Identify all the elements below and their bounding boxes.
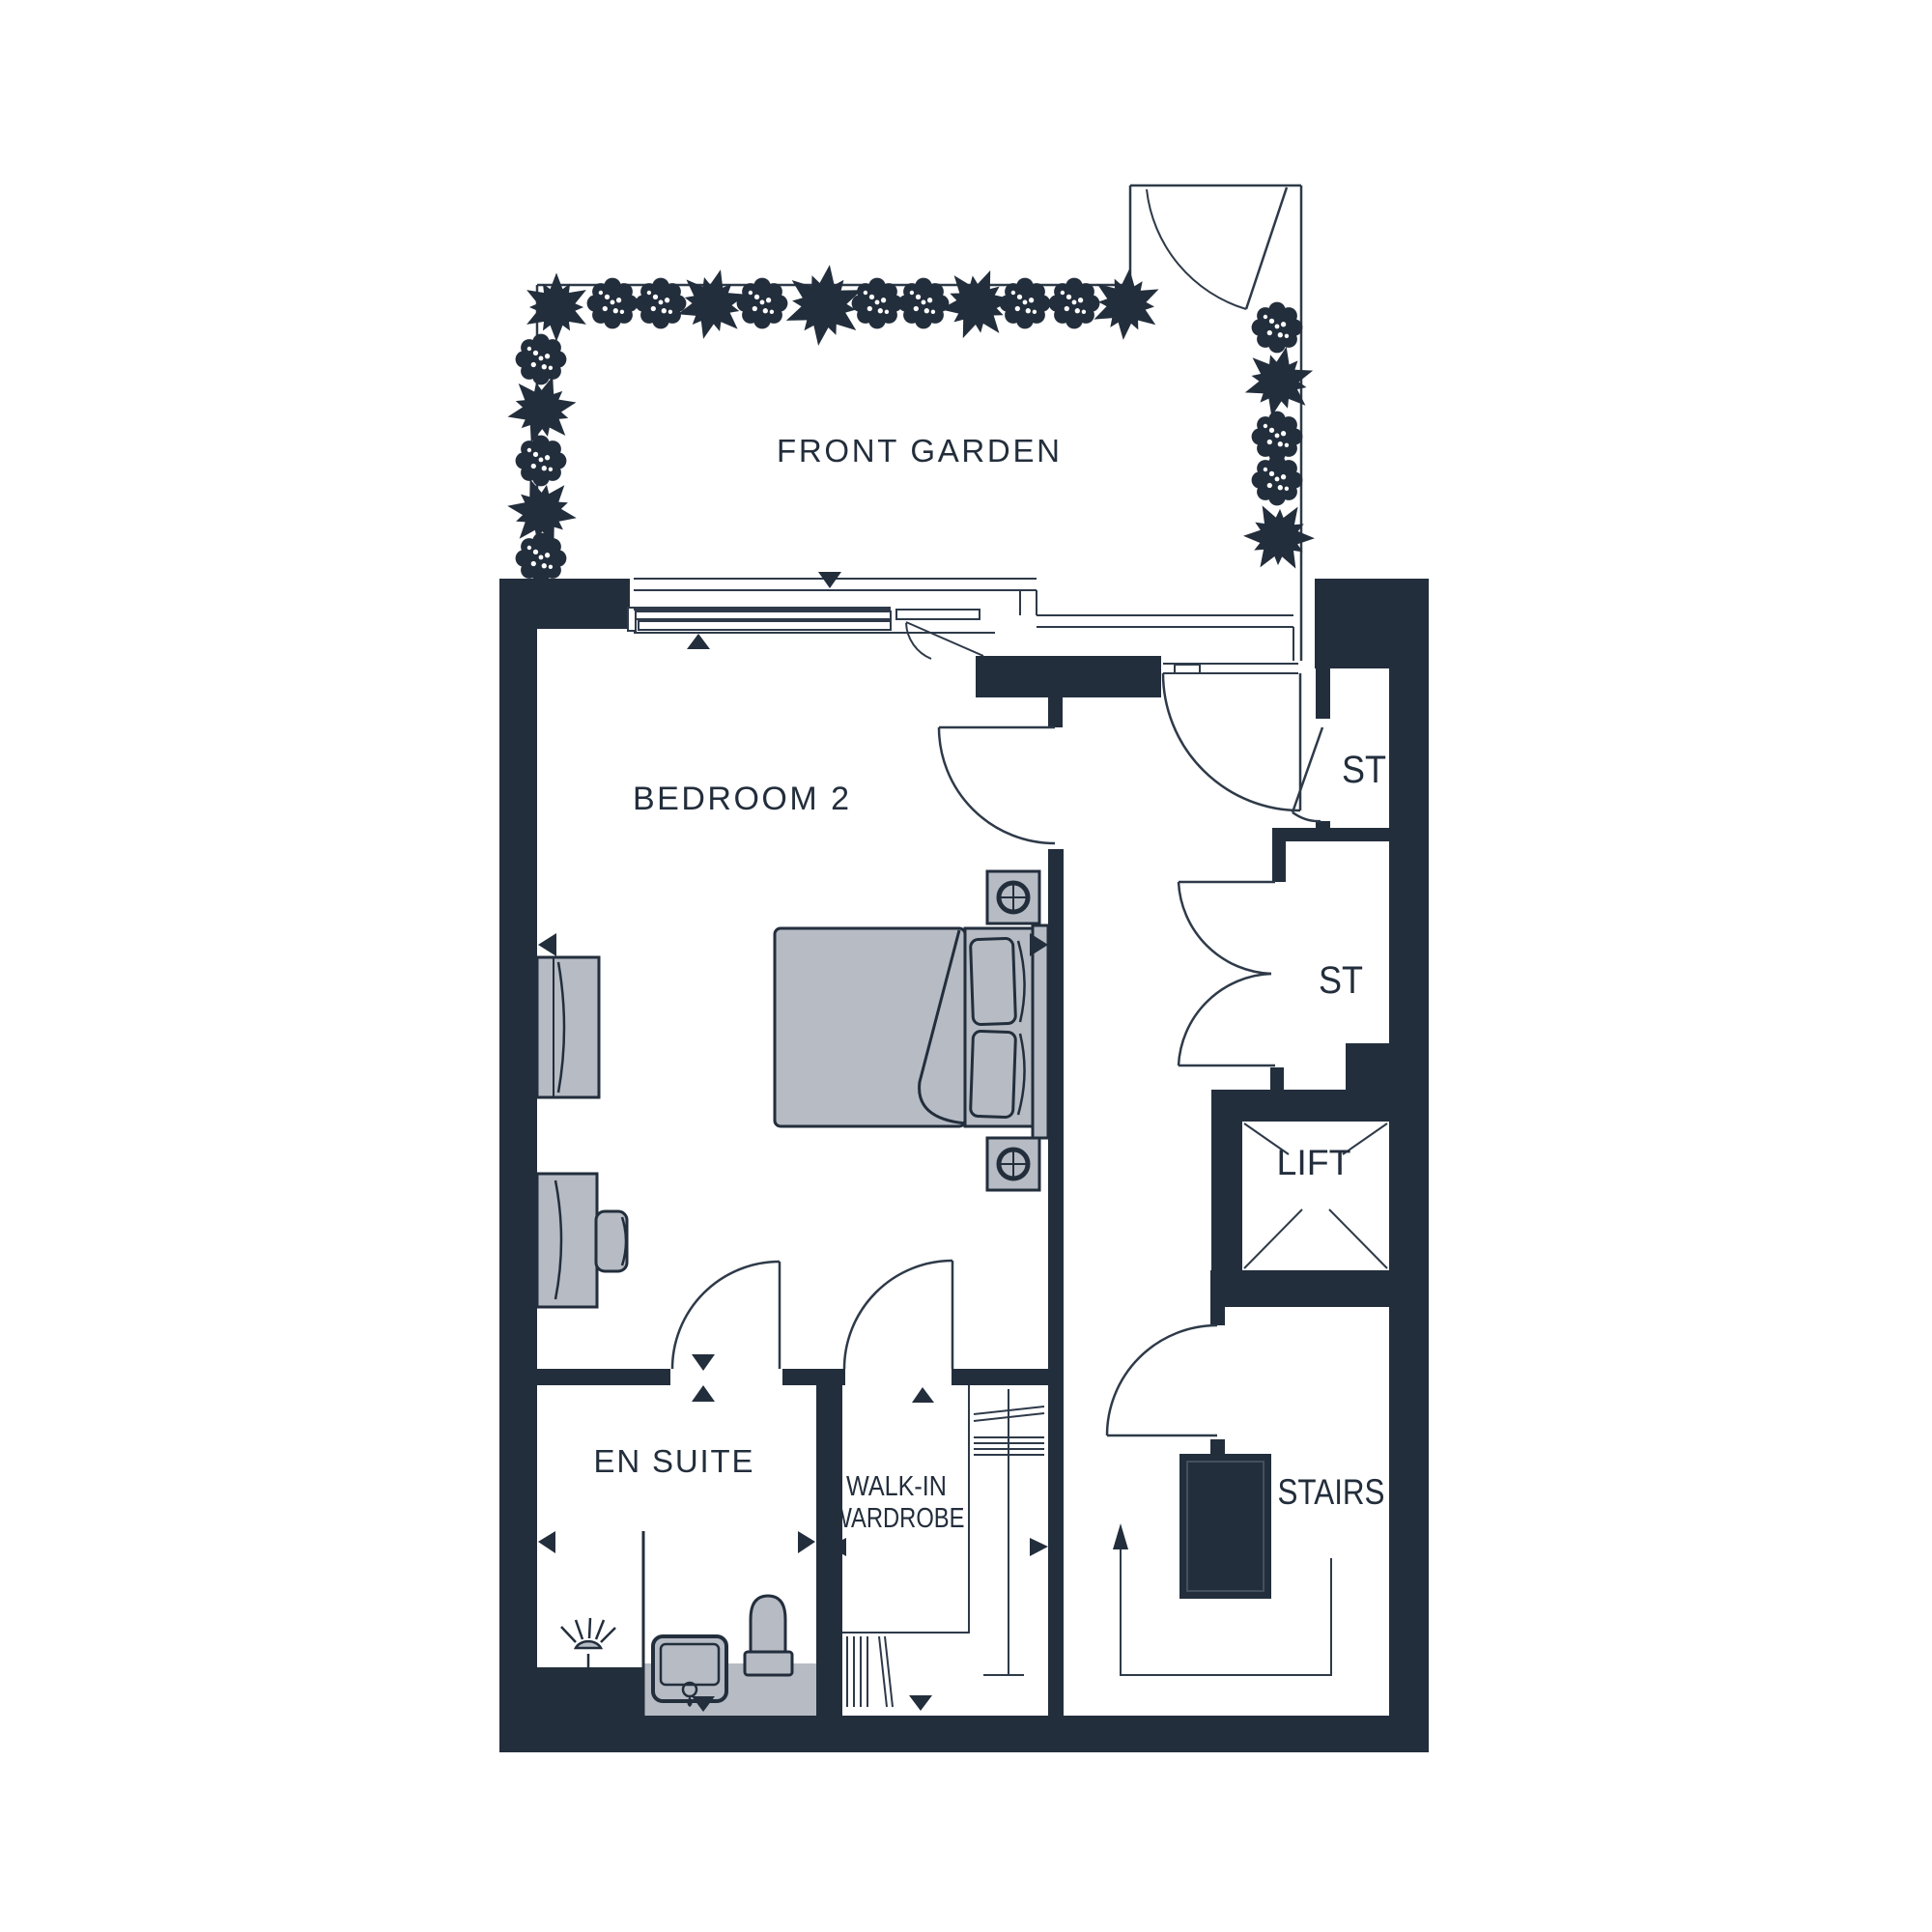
svg-text:WARDROBE: WARDROBE xyxy=(831,1503,965,1534)
svg-text:FRONT GARDEN: FRONT GARDEN xyxy=(777,433,1063,469)
svg-text:ST: ST xyxy=(1342,749,1386,791)
svg-text:WALK-IN: WALK-IN xyxy=(846,1471,947,1502)
svg-text:STAIRS: STAIRS xyxy=(1278,1472,1385,1512)
svg-text:ST: ST xyxy=(1319,959,1363,1002)
svg-text:LIFT: LIFT xyxy=(1277,1143,1351,1182)
svg-text:EN SUITE: EN SUITE xyxy=(594,1443,755,1479)
svg-text:BEDROOM 2: BEDROOM 2 xyxy=(633,781,851,817)
